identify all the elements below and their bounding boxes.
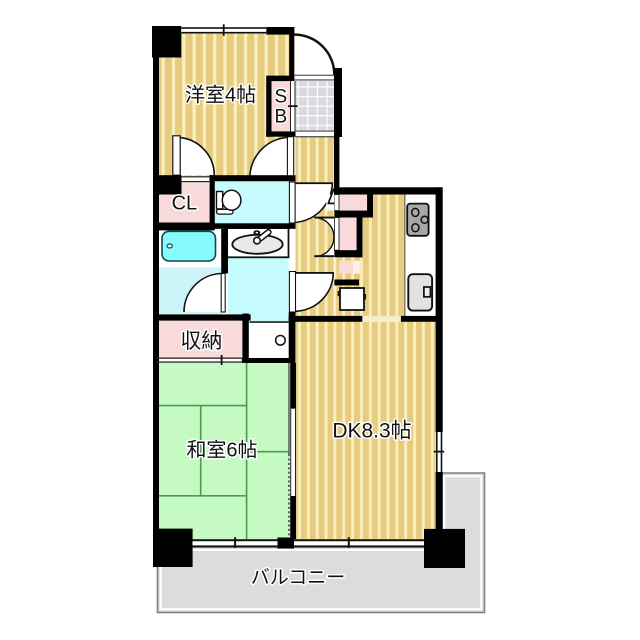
svg-text:DK8.3帖: DK8.3帖 bbox=[332, 420, 411, 443]
svg-text:バルコニー: バルコニー bbox=[251, 567, 346, 588]
svg-text:CL: CL bbox=[172, 193, 198, 215]
svg-text:洋室4帖: 洋室4帖 bbox=[185, 84, 256, 107]
svg-text:B: B bbox=[274, 107, 287, 128]
svg-text:和室6帖: 和室6帖 bbox=[186, 439, 257, 462]
svg-text:S: S bbox=[274, 87, 287, 108]
svg-text:収納: 収納 bbox=[180, 330, 222, 353]
